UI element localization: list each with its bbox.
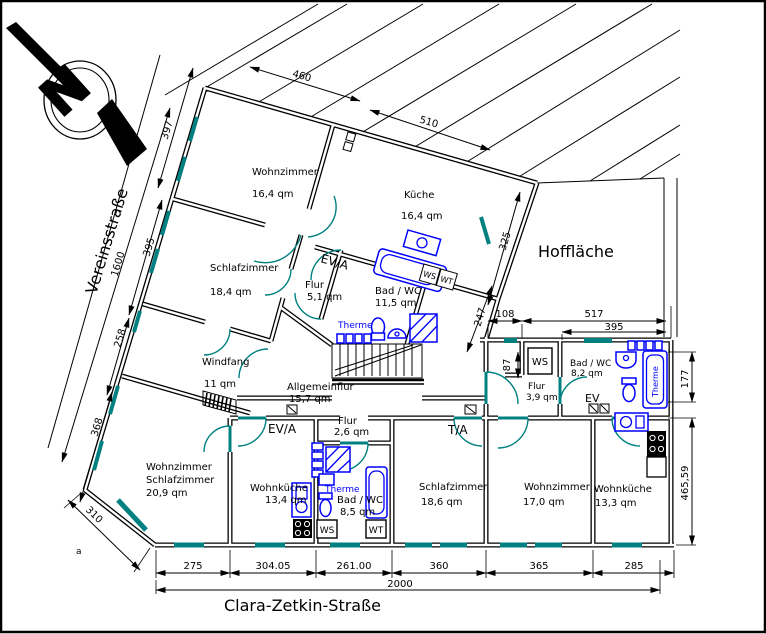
dim-510: 510 [418, 115, 439, 131]
svg-text:16,4 qm: 16,4 qm [252, 189, 294, 200]
dim-460: 460 [291, 69, 312, 85]
roof-hatch [165, 4, 680, 183]
room-wohnzimmer-2: Wohnzimmer [524, 482, 591, 493]
dim-397: 397 [160, 120, 176, 141]
label-ev: EV [585, 392, 600, 405]
label-ev-a-mid: EV/A [268, 422, 297, 436]
dim-310: 310 [83, 505, 104, 526]
room-flur-2: Flur [338, 416, 358, 427]
staircase [332, 344, 424, 384]
toilet-icon [319, 493, 332, 517]
shower-icon [410, 314, 437, 342]
sink-icon [403, 230, 440, 256]
svg-text:3,9 qm: 3,9 qm [526, 393, 558, 403]
room-allgemeinflur: Allgemeinflur [287, 382, 355, 393]
room-flur-3: Flur [528, 382, 545, 392]
compass-letter: N [30, 55, 102, 129]
area-hofflaeche: Hoffläche [538, 242, 614, 261]
counter-icon [647, 457, 666, 477]
dim-108: 108 [495, 309, 514, 320]
dim-395-right: 395 [604, 322, 623, 333]
label-therme-3: Therme [651, 366, 660, 398]
svg-text:11 qm: 11 qm [204, 379, 236, 390]
dryer-icon: WT [366, 520, 386, 538]
room-bad-wc-2: Bad / WC [337, 495, 383, 506]
dim-360: 360 [429, 561, 448, 572]
sink-icon [388, 329, 406, 338]
dim-275: 275 [183, 561, 202, 572]
svg-text:18,4 qm: 18,4 qm [210, 287, 252, 298]
svg-text:WS: WS [320, 526, 335, 536]
courtyard-boundary [664, 178, 677, 337]
room-bad-wc-3: Bad / WC [570, 359, 611, 369]
dim-2000: 2000 [387, 579, 412, 590]
stove-icon [293, 519, 312, 538]
room-wohnzimmer-1: Wohnzimmer [252, 167, 319, 178]
street-vereinsstrasse: Vereinsstraße [82, 186, 132, 296]
dim-261: 261.00 [337, 561, 372, 572]
north-arrow-icon: N [6, 22, 147, 166]
boiler-icon [319, 474, 334, 485]
svg-text:15,7 qm: 15,7 qm [289, 394, 331, 405]
dim-517: 517 [584, 309, 603, 320]
room-flur-1: Flur [305, 280, 325, 291]
room-wohnkueche-1: Wohnküche [250, 483, 308, 494]
street-clara-zetkin: Clara-Zetkin-Straße [224, 596, 381, 615]
svg-text:8,2 qm: 8,2 qm [571, 369, 603, 379]
sink-icon [616, 352, 636, 368]
svg-text:11,5 qm: 11,5 qm [375, 298, 417, 309]
toilet-icon [372, 318, 385, 340]
floor-plan-drawing: WS WT WS WT WS N [0, 0, 766, 634]
label-corner-a: a [76, 547, 82, 557]
closet-ws: WS [528, 348, 552, 374]
svg-text:20,9 qm: 20,9 qm [146, 488, 188, 499]
dim-177: 177 [680, 369, 691, 388]
dim-247: 247 [473, 307, 489, 328]
washer-icon: WS [317, 520, 337, 538]
svg-text:2,6 qm: 2,6 qm [334, 427, 369, 438]
svg-text:WS: WS [532, 357, 548, 368]
svg-text:18,6 qm: 18,6 qm [421, 497, 463, 508]
shower-icon [326, 447, 350, 472]
svg-text:Schlafzimmer: Schlafzimmer [146, 475, 215, 486]
toilet-icon [622, 378, 636, 402]
room-schlafzimmer-1: Schlafzimmer [210, 263, 279, 274]
label-therme-2: Therme [324, 485, 360, 495]
room-bad-wc-1: Bad / WC [375, 286, 421, 297]
dim-285: 285 [624, 561, 643, 572]
room-wohn-schlafzimmer: Wohnzimmer [146, 462, 213, 473]
dim-465: 465,59 [680, 466, 691, 501]
dim-304: 304.05 [256, 561, 291, 572]
svg-text:17,0 qm: 17,0 qm [523, 497, 565, 508]
dim-87: 87 [502, 359, 513, 372]
dim-365: 365 [529, 561, 548, 572]
radiator-icon [337, 334, 371, 343]
room-windfang: Windfang [202, 357, 249, 368]
svg-text:13,3 qm: 13,3 qm [595, 498, 637, 509]
chimney-icon [343, 132, 356, 152]
label-therme-1: Therme [337, 321, 373, 331]
svg-text:16,4 qm: 16,4 qm [401, 211, 443, 222]
room-wohnkueche-2: Wohnküche [594, 484, 652, 495]
stove-icon [647, 431, 666, 457]
floor-plan-page: WS WT WS WT WS N [0, 0, 766, 634]
dim-325: 325 [498, 231, 514, 252]
label-t-a: T/A [447, 423, 468, 437]
kitchen-sink-icon [615, 413, 648, 431]
svg-text:8,5 qm: 8,5 qm [340, 507, 375, 518]
svg-text:WT: WT [369, 526, 384, 536]
room-kueche: Küche [404, 190, 434, 201]
svg-text:5,1 qm: 5,1 qm [307, 292, 342, 303]
svg-text:13,4 qm: 13,4 qm [265, 495, 307, 506]
room-schlafzimmer-2: Schlafzimmer [419, 482, 488, 493]
